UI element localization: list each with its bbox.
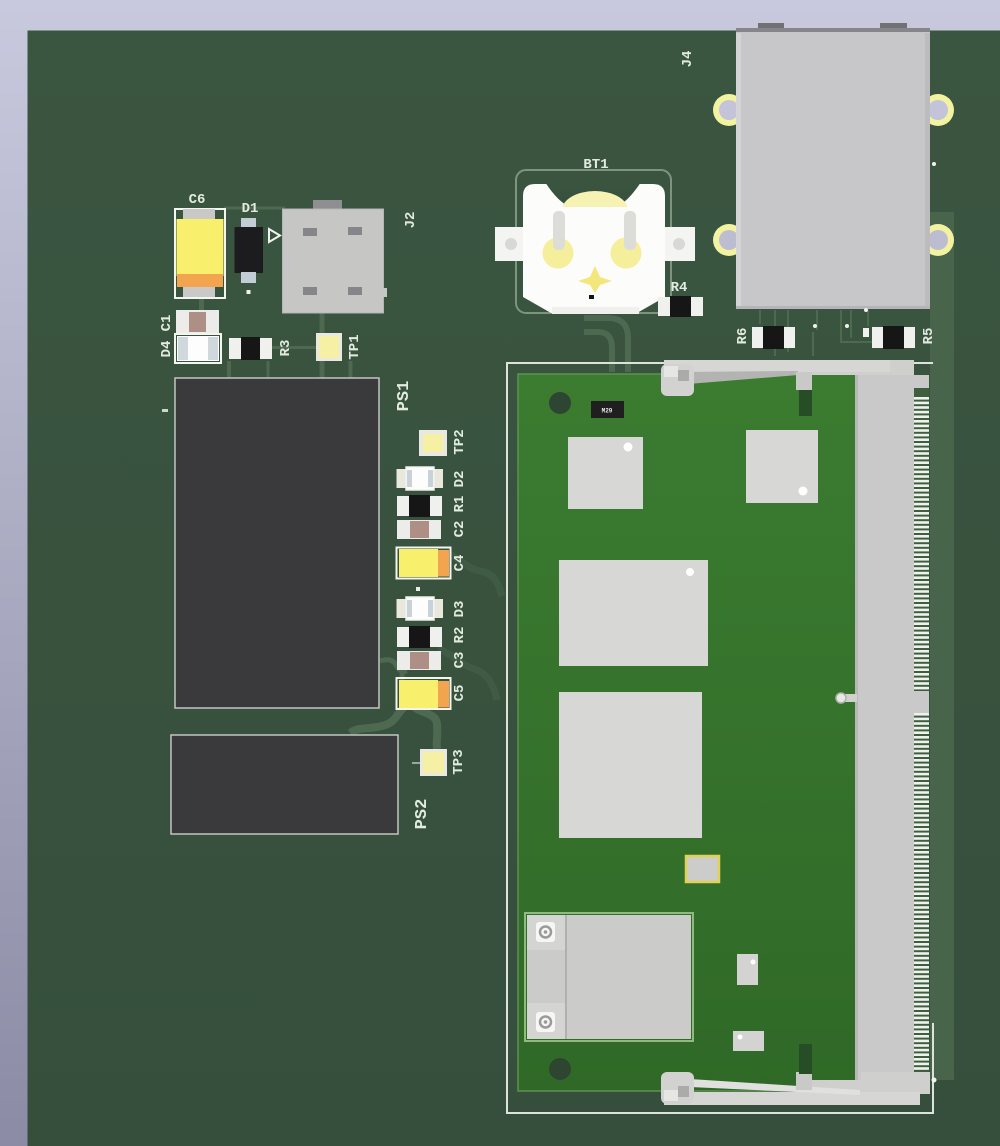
svg-text:C5: C5 [452, 685, 468, 702]
svg-text:D2: D2 [452, 471, 468, 488]
svg-text:C1: C1 [159, 315, 175, 332]
svg-text:R1: R1 [452, 496, 468, 513]
svg-text:D4: D4 [159, 341, 175, 358]
svg-text:D1: D1 [242, 201, 259, 217]
svg-text:R5: R5 [921, 328, 937, 345]
svg-text:D3: D3 [452, 601, 468, 618]
svg-text:J2: J2 [403, 212, 419, 229]
svg-text:J4: J4 [680, 51, 696, 68]
svg-text:R2: R2 [452, 627, 468, 644]
svg-text:C4: C4 [452, 555, 468, 572]
svg-text:C6: C6 [189, 192, 206, 208]
svg-text:TP3: TP3 [451, 749, 467, 774]
svg-text:TP2: TP2 [452, 429, 468, 454]
svg-text:TP1: TP1 [347, 334, 363, 359]
svg-text:PS2: PS2 [413, 799, 432, 830]
svg-text:M29: M29 [602, 408, 613, 415]
svg-text:R4: R4 [671, 280, 688, 296]
svg-text:C2: C2 [452, 521, 468, 538]
svg-text:C3: C3 [452, 652, 468, 669]
svg-text:R3: R3 [278, 340, 294, 357]
svg-text:PS1: PS1 [395, 381, 414, 412]
svg-text:BT1: BT1 [583, 157, 608, 173]
svg-text:R6: R6 [735, 328, 751, 345]
